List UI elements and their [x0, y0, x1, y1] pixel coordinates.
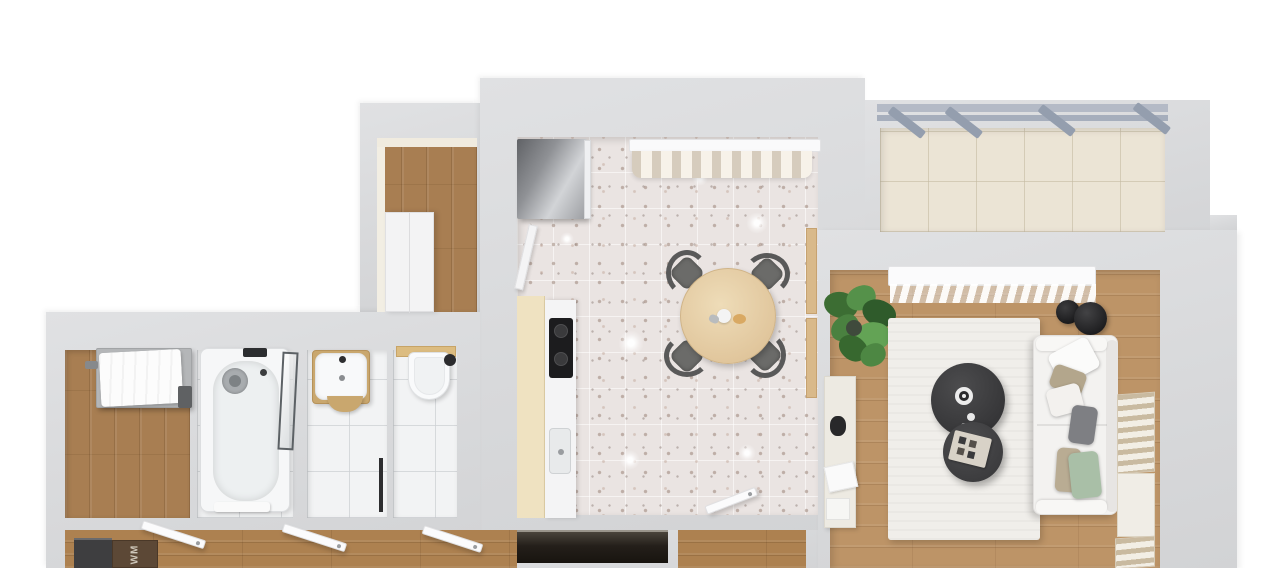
book: [948, 430, 992, 468]
storage-wall-trim: [377, 147, 385, 312]
side-table: [1074, 302, 1107, 335]
basin-faucet: [339, 356, 346, 363]
floor-glint: [618, 330, 644, 356]
closet-niche: [517, 530, 668, 563]
kitchen-sink: [549, 428, 571, 474]
mop-handle: [379, 458, 383, 512]
bath-faucet: [243, 348, 267, 357]
bath-mat: [214, 502, 270, 512]
doormat: WM: [112, 540, 158, 568]
basin-drain: [339, 375, 345, 381]
book-art: [967, 451, 975, 459]
floor-glint: [560, 232, 574, 246]
shower-head-center: [229, 375, 241, 387]
bath-drain-knob: [260, 369, 267, 376]
sofa-pillow-gray: [1067, 404, 1098, 445]
console-box: [826, 498, 850, 520]
storage-window-sill: [377, 138, 477, 147]
wood-slat-panel: [806, 228, 817, 314]
wall-handle: [85, 361, 98, 369]
sofa-pillow-green: [1068, 451, 1103, 500]
plant-pot: [846, 320, 862, 336]
dining-table: [680, 268, 776, 364]
doormat-label: WM: [130, 544, 141, 564]
kitchen-curtain: [632, 151, 812, 178]
radiator-panel: [1117, 473, 1155, 537]
living-window-rail: [888, 266, 1096, 286]
table-dot: [967, 413, 975, 421]
shower-head: [222, 368, 248, 394]
toilet-bowl-inner: [414, 357, 445, 395]
fridge: [517, 139, 587, 219]
hallway-floor-east: [678, 530, 806, 568]
toilet-hardware: [444, 354, 456, 366]
floor-plan-scene: WM: [0, 0, 1280, 568]
table-plate: [717, 309, 731, 323]
floor-glint: [746, 212, 768, 234]
cooktop-burner: [554, 352, 568, 366]
cooktop-burner: [554, 324, 568, 338]
sofa-armrest: [1036, 500, 1107, 514]
floor-glint: [620, 450, 640, 470]
floor-glint: [738, 444, 756, 462]
console-speaker: [830, 416, 846, 436]
coffee-table-small: [943, 422, 1003, 482]
table-pastry: [733, 314, 746, 324]
wardrobe: [385, 212, 434, 312]
cooktop: [549, 318, 573, 378]
book-art: [956, 447, 964, 455]
pergola-rail: [877, 104, 1168, 112]
wardrobe-door-split: [409, 213, 410, 313]
book-art: [958, 436, 966, 444]
washbasin: [315, 353, 367, 400]
book-art: [969, 440, 977, 448]
balcony-floor: [880, 128, 1165, 232]
bed-duvet: [99, 349, 184, 407]
pergola-rail: [877, 115, 1168, 121]
wall-living-step: [1210, 215, 1237, 230]
bed-corner-hardware: [178, 386, 192, 408]
sink-drain: [558, 449, 564, 455]
entry-bench: [74, 538, 112, 568]
radiator: [1117, 392, 1155, 475]
coffee-cup: [955, 387, 973, 405]
fridge-door-edge: [584, 140, 591, 219]
radiator: [1115, 536, 1155, 568]
wood-slat-panel: [806, 318, 817, 398]
kitchen-counter-wood: [517, 296, 545, 518]
